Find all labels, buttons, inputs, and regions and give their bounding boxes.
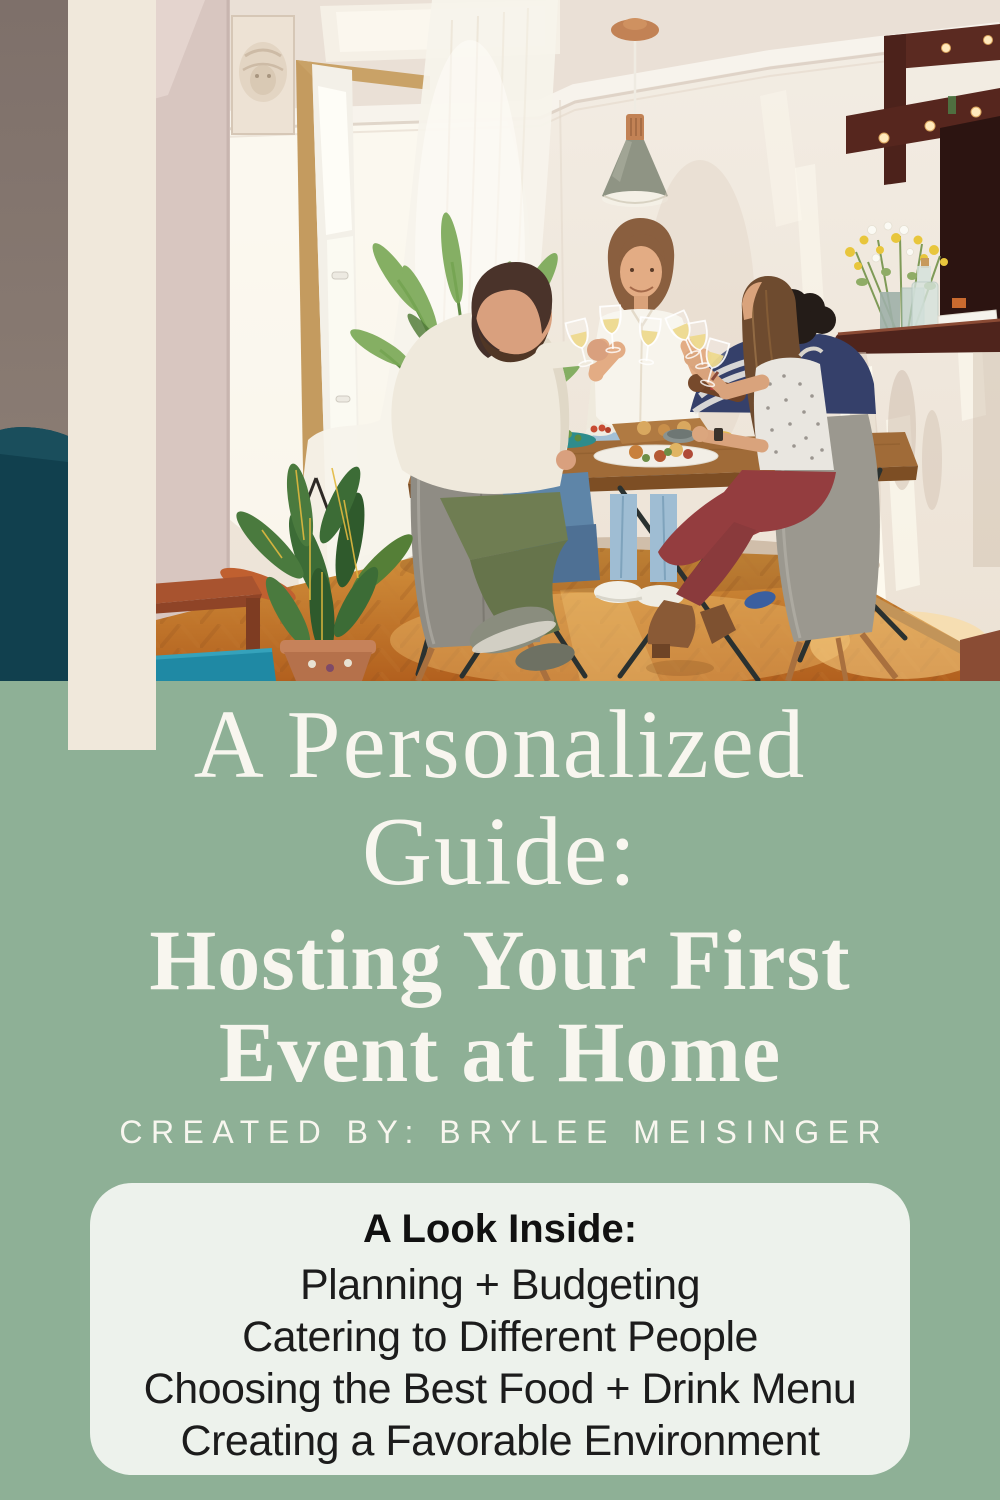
card-item-environment: Creating a Favorable Environment — [90, 1415, 910, 1467]
look-inside-card: A Look Inside: Planning + Budgeting Cate… — [90, 1183, 910, 1475]
main-title-line-2: Guide: — [0, 799, 1000, 906]
cream-accent-bar — [68, 0, 156, 750]
main-title-line-1: A Personalized — [0, 692, 1000, 799]
lion-relief — [232, 16, 294, 134]
card-item-catering: Catering to Different People — [90, 1311, 910, 1363]
card-item-menu: Choosing the Best Food + Drink Menu — [90, 1363, 910, 1415]
guide-cover-poster: A Personalized Guide: Hosting Your First… — [0, 0, 1000, 1500]
subtitle: Hosting Your First Event at Home — [0, 914, 1000, 1098]
subtitle-line-1: Hosting Your First — [0, 914, 1000, 1006]
main-title: A Personalized Guide: — [0, 692, 1000, 905]
byline: CREATED BY: BRYLEE MEISINGER — [0, 1114, 1000, 1151]
subtitle-line-2: Event at Home — [0, 1006, 1000, 1098]
teal-armchair — [0, 427, 68, 681]
card-item-planning: Planning + Budgeting — [90, 1259, 910, 1311]
card-heading: A Look Inside: — [90, 1205, 910, 1253]
